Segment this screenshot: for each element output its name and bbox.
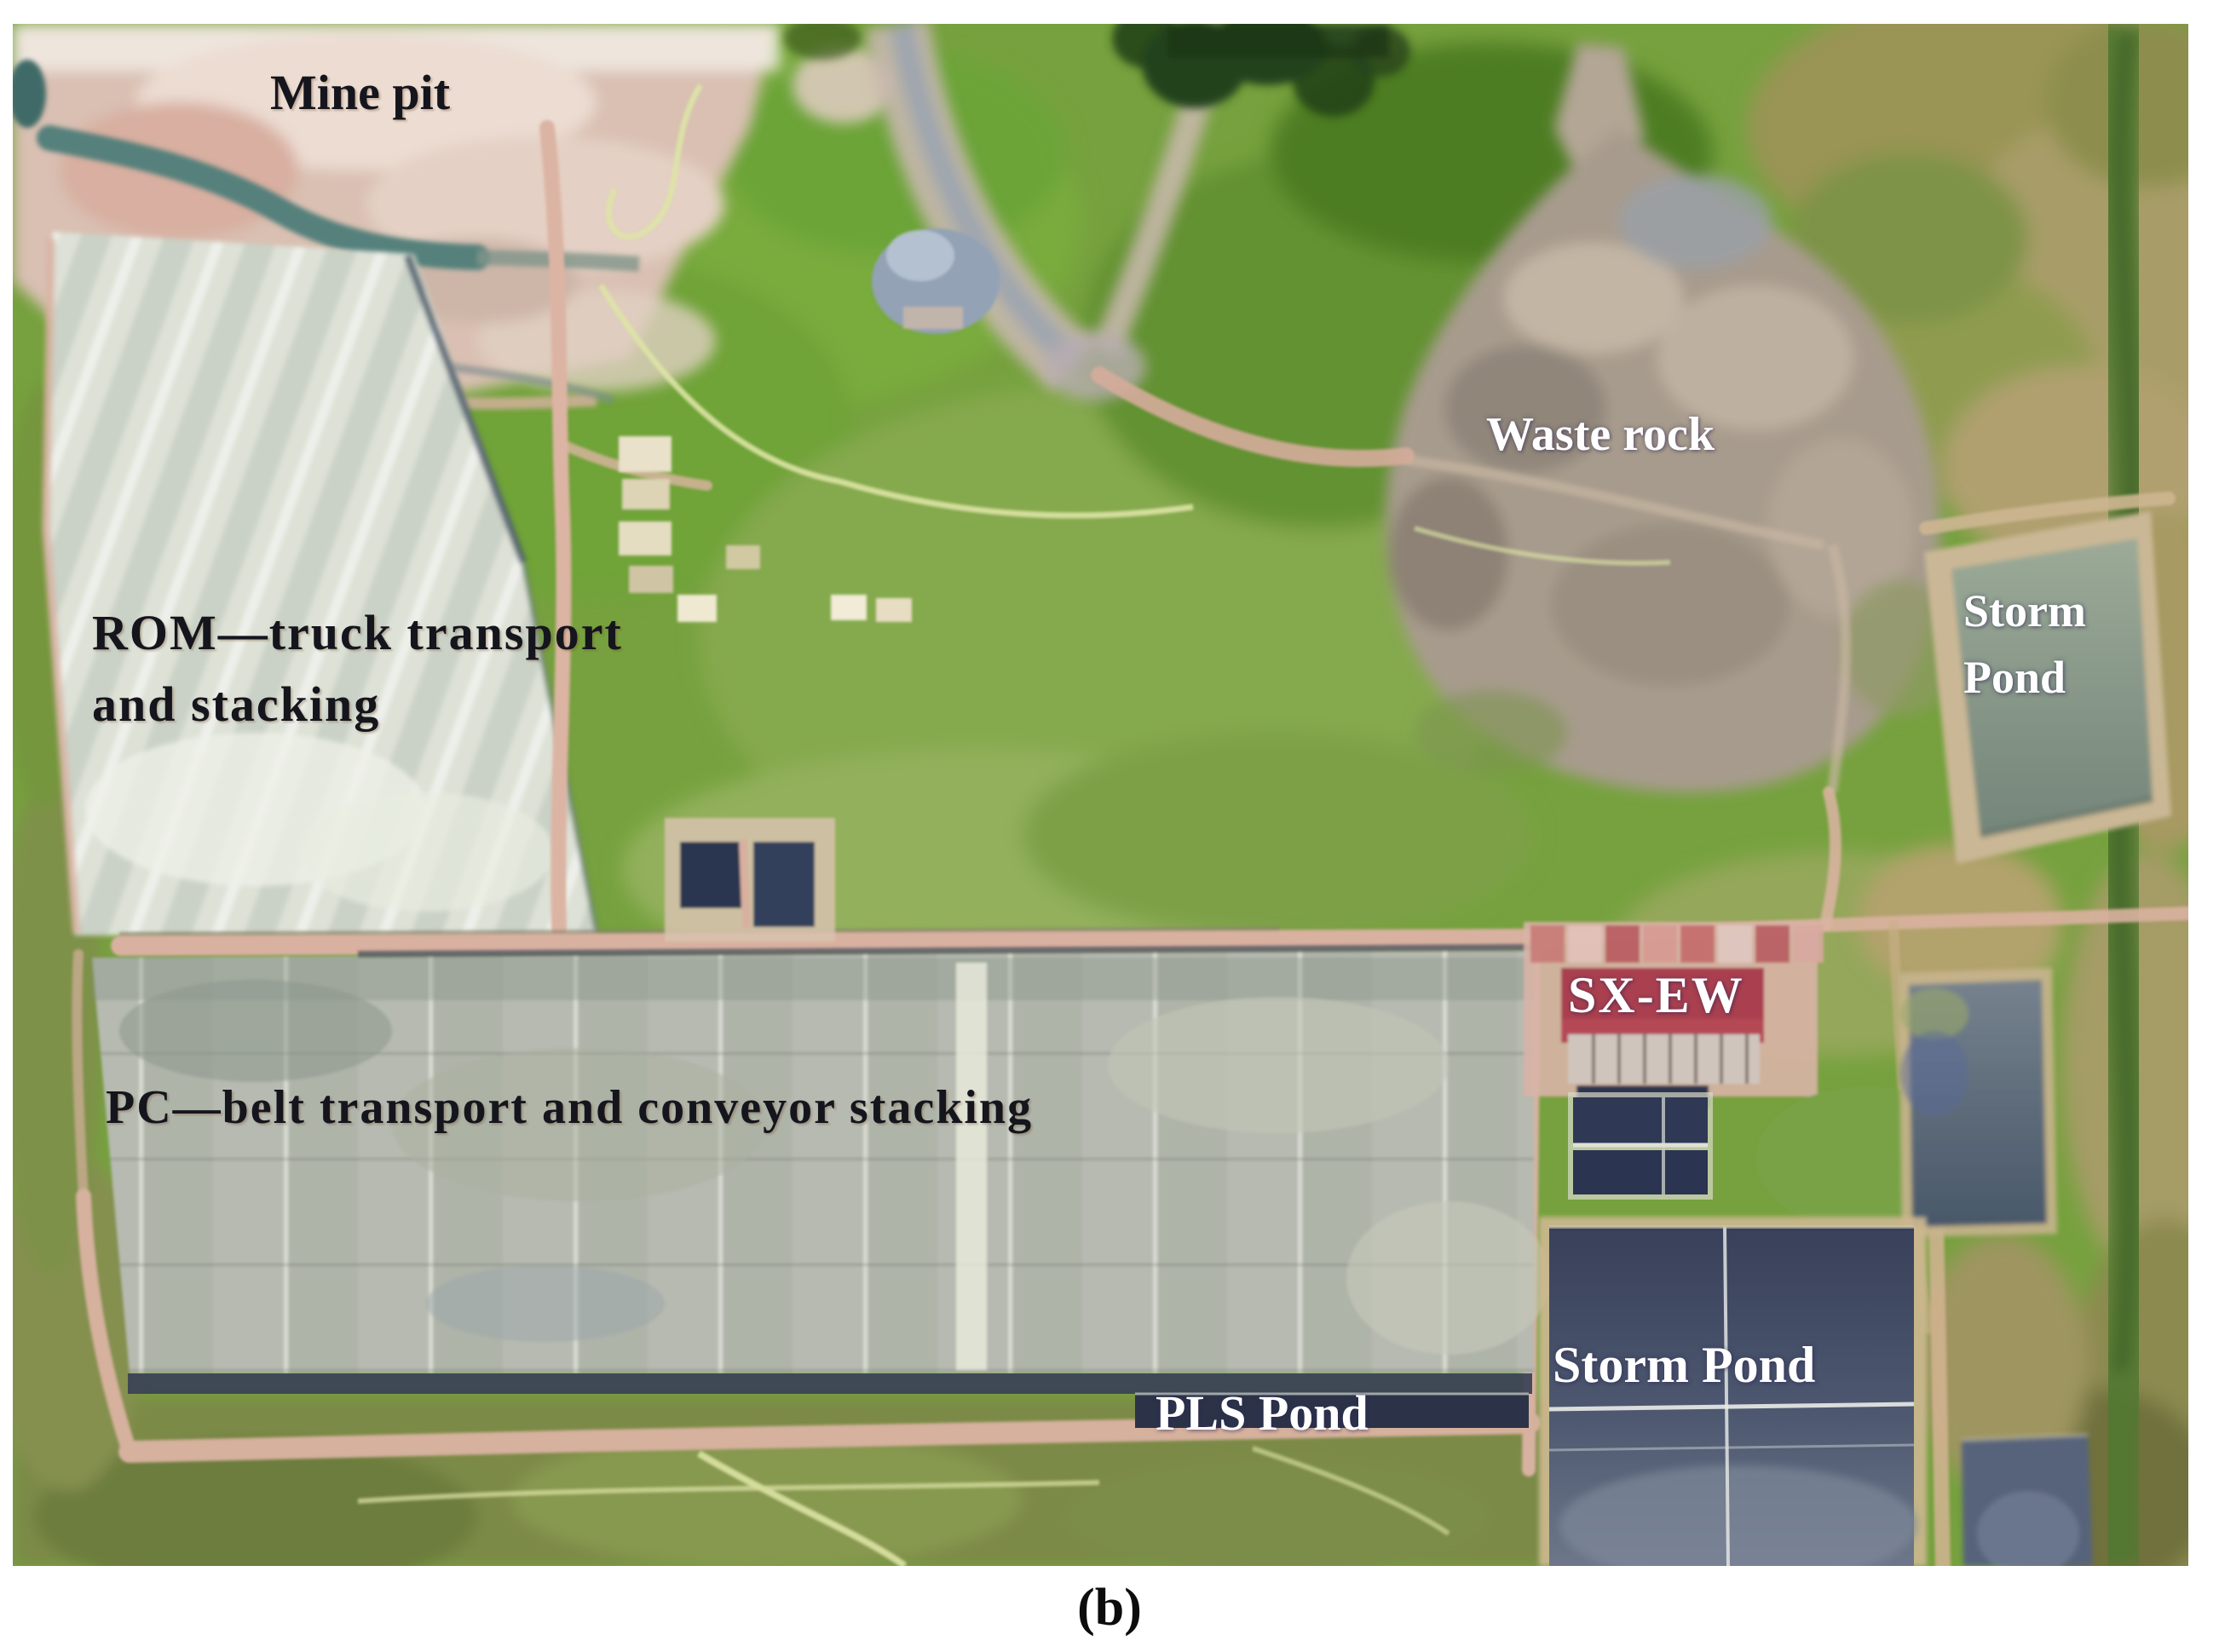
- label-rom-line2: and stacking: [92, 680, 380, 729]
- aerial-photo: [0, 0, 2219, 1648]
- label-pc-belt: PC—belt transport and conveyor stacking: [106, 1084, 1033, 1131]
- label-sx-ew: SX-EW: [1568, 970, 1744, 1021]
- label-waste-rock: Waste rock: [1486, 411, 1715, 458]
- label-storm-pond-lower: Storm Pond: [1553, 1339, 1815, 1390]
- label-storm-pond-upper-line1: Storm: [1963, 588, 2086, 634]
- label-rom-line1: ROM—truck transport: [92, 608, 623, 658]
- label-pls-pond: PLS Pond: [1156, 1389, 1369, 1438]
- label-storm-pond-upper-line2: Pond: [1963, 654, 2066, 700]
- figure-caption: (b): [0, 1578, 2219, 1638]
- label-mine-pit: Mine pit: [270, 68, 450, 118]
- aerial-photo-art: [0, 0, 2219, 1648]
